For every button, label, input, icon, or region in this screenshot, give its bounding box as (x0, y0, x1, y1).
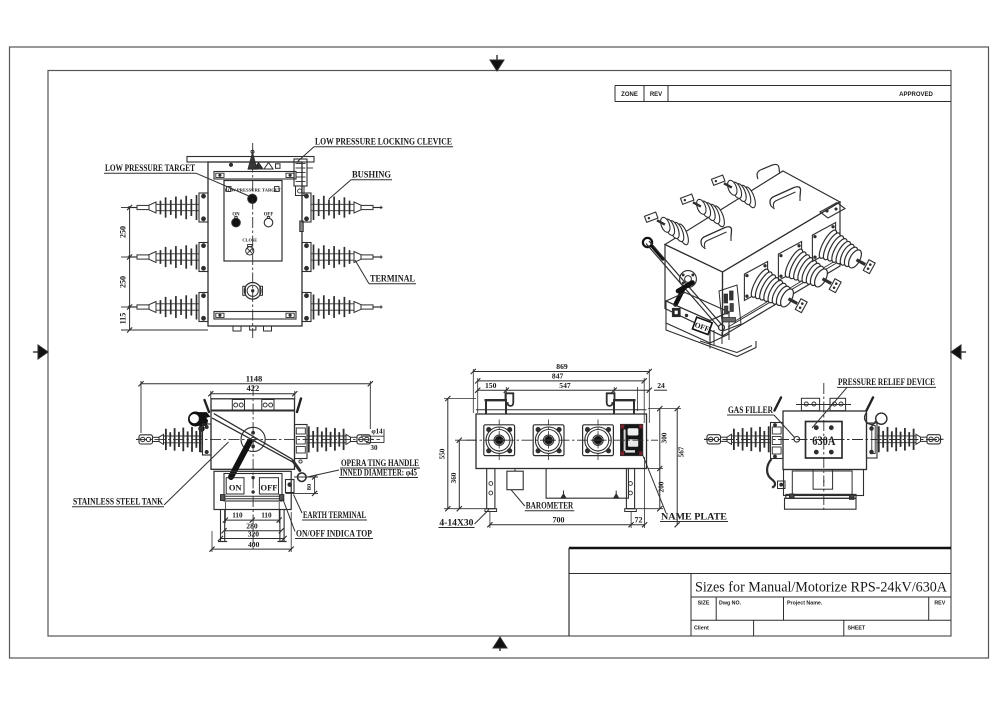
svg-text:ON/OFF INDICA TOP: ON/OFF INDICA TOP (296, 528, 372, 538)
svg-text:REV: REV (650, 92, 662, 98)
svg-text:NAME PLATE: NAME PLATE (661, 511, 727, 521)
svg-text:OFF: OFF (261, 483, 278, 493)
svg-text:ON: ON (229, 483, 243, 493)
svg-text:SHEET: SHEET (848, 626, 866, 632)
svg-text:BAROMETER: BAROMETER (526, 501, 574, 511)
svg-text:360: 360 (450, 472, 458, 483)
svg-text:24: 24 (657, 381, 665, 390)
svg-text:4-14X30: 4-14X30 (439, 517, 474, 527)
svg-text:ZONE: ZONE (621, 92, 638, 98)
svg-text:847: 847 (552, 372, 564, 381)
svg-text:110: 110 (261, 512, 272, 520)
svg-text:LOW PRESSURE LOCKING CLEVICE: LOW PRESSURE LOCKING CLEVICE (315, 137, 452, 147)
svg-text:SIZE: SIZE (698, 601, 710, 607)
svg-text:TERMINAL: TERMINAL (370, 274, 415, 284)
svg-text:869: 869 (556, 362, 568, 371)
svg-text:Dwg NO.: Dwg NO. (719, 601, 742, 607)
svg-text:BUSHING: BUSHING (352, 170, 391, 180)
svg-text:GAS FILLER: GAS FILLER (728, 405, 773, 415)
svg-text:250: 250 (119, 226, 128, 238)
svg-text:PRESSURE RELIEF DEVICE: PRESSURE RELIEF DEVICE (838, 377, 935, 387)
svg-text:STAINLESS STEEL TANK: STAINLESS STEEL TANK (73, 497, 164, 507)
svg-text:547: 547 (559, 381, 571, 390)
svg-text:300: 300 (661, 432, 669, 443)
svg-text:320: 320 (248, 529, 260, 538)
svg-text:Sizes for Manual/Motorize RPS-: Sizes for Manual/Motorize RPS-24kV/630A (695, 579, 947, 596)
svg-text:700: 700 (553, 515, 565, 524)
svg-text:Project Name.: Project Name. (787, 601, 823, 607)
svg-text:CLOSE: CLOSE (242, 238, 257, 243)
svg-text:200: 200 (658, 481, 666, 492)
svg-text:30: 30 (371, 444, 379, 452)
svg-text:Client: Client (694, 626, 709, 632)
svg-text:φ14: φ14 (371, 427, 383, 435)
svg-text:567: 567 (678, 446, 686, 457)
svg-text:1148: 1148 (246, 373, 263, 383)
svg-text:APPROVED: APPROVED (899, 92, 933, 98)
svg-text:150: 150 (485, 381, 497, 390)
svg-text:250: 250 (119, 276, 128, 288)
svg-text:400: 400 (248, 540, 260, 549)
svg-text:LOW PRESSURE TARGET: LOW PRESSURE TARGET (105, 163, 195, 173)
svg-text:550: 550 (439, 448, 447, 459)
svg-text:72: 72 (635, 515, 643, 524)
svg-text:110: 110 (232, 512, 243, 520)
svg-text:OPERA TING HANDLE: OPERA TING HANDLE (341, 458, 419, 468)
svg-text:115: 115 (119, 313, 128, 325)
svg-text:80: 80 (306, 484, 313, 491)
svg-text:EARTH TERMINAL: EARTH TERMINAL (303, 510, 366, 520)
svg-text:REV: REV (934, 601, 945, 607)
svg-text:INNED DIAMETER: φ45: INNED DIAMETER: φ45 (340, 467, 417, 477)
